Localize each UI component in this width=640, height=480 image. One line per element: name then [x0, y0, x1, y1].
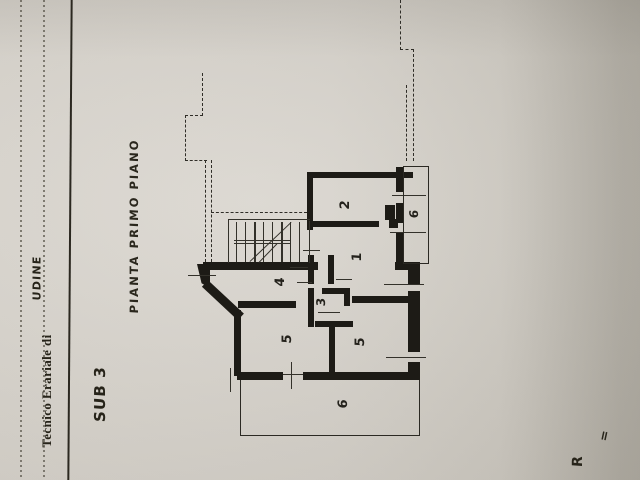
thin-line	[303, 250, 320, 251]
thin-line	[290, 222, 291, 262]
wall-segment	[303, 372, 420, 380]
dashed-outline	[185, 115, 203, 116]
room-label-1: 1	[346, 245, 368, 269]
dashed-outline	[400, 49, 414, 50]
dashed-outline	[406, 85, 407, 161]
thin-line	[236, 222, 237, 262]
balcony-outline	[240, 380, 420, 436]
wall-segment	[352, 296, 414, 303]
thin-line	[386, 357, 426, 358]
wall-segment	[313, 221, 379, 227]
room-label-6: 6	[332, 392, 354, 416]
room-label-3: 3	[310, 290, 332, 314]
dashed-outline	[185, 115, 186, 161]
partial-handwriting: R	[570, 454, 586, 467]
wall-segment	[328, 255, 334, 284]
wall-segment	[203, 262, 318, 270]
dashed-outline	[185, 160, 207, 161]
wall-segment	[238, 301, 296, 308]
thin-line	[297, 282, 312, 283]
thin-line	[283, 374, 303, 375]
wall-segment	[329, 321, 335, 377]
thin-line	[272, 222, 273, 262]
dashed-outline	[202, 73, 203, 116]
thin-line	[309, 221, 310, 263]
thin-line	[384, 284, 424, 285]
wall-segment	[344, 288, 350, 306]
dashed-outline	[205, 160, 206, 262]
room-label-6: 6	[403, 202, 425, 226]
floorplan-drawing: 21643556	[0, 0, 640, 480]
thin-line	[299, 222, 300, 262]
wall-segment	[237, 372, 283, 380]
thin-line	[234, 240, 291, 241]
room-label-5: 5	[276, 327, 298, 351]
dashed-outline	[400, 0, 401, 50]
stair-break-line	[258, 244, 277, 264]
scanned-floorplan-document: { "document": { "form_header": { "printe…	[0, 0, 640, 480]
dashed-outline	[211, 160, 212, 262]
wall-segment	[385, 205, 395, 220]
thin-line	[234, 243, 291, 244]
thin-line	[230, 368, 231, 392]
room-label-5: 5	[349, 330, 371, 354]
dashed-outline	[211, 212, 307, 213]
dashed-outline	[413, 49, 414, 161]
thin-line	[336, 279, 352, 280]
room-label-4: 4	[269, 270, 291, 294]
thin-line	[228, 219, 229, 263]
thin-line	[228, 219, 310, 220]
thin-line	[245, 222, 246, 262]
wall-segment	[408, 270, 420, 284]
room-label-2: 2	[334, 193, 356, 217]
thin-line	[290, 267, 308, 268]
thin-line	[188, 275, 216, 276]
